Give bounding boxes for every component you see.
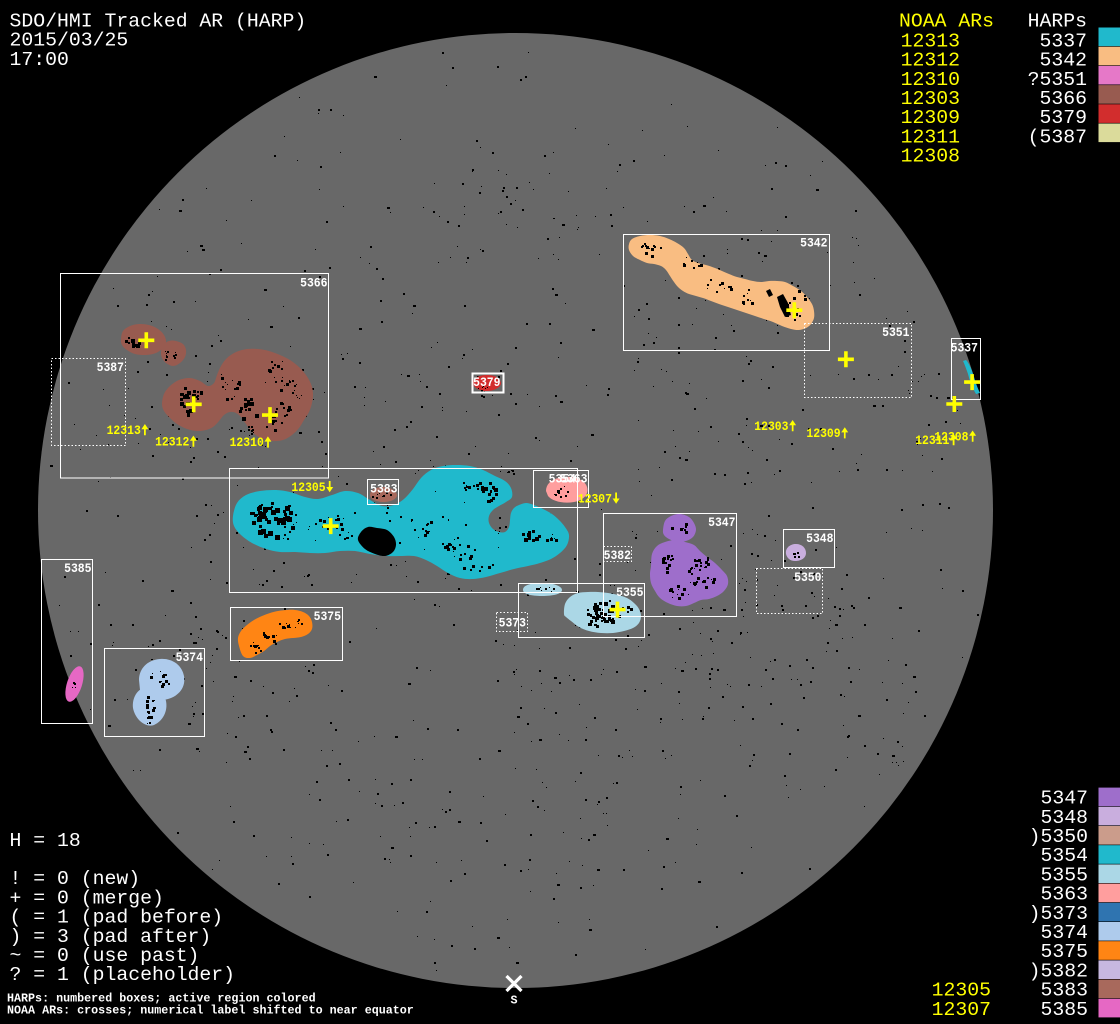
svg-text:5373: 5373 xyxy=(499,617,526,631)
svg-text:12310: 12310 xyxy=(230,436,264,450)
svg-text:5385: 5385 xyxy=(64,562,91,576)
svg-text:12307: 12307 xyxy=(578,492,612,506)
svg-text:12311: 12311 xyxy=(915,434,950,448)
svg-text:5347: 5347 xyxy=(708,516,735,530)
svg-text:12307: 12307 xyxy=(932,999,991,1021)
svg-text:5387: 5387 xyxy=(97,361,124,375)
svg-text:17:00: 17:00 xyxy=(10,49,69,71)
svg-text:HARPs: HARPs xyxy=(1028,11,1087,33)
svg-text:NOAA ARs: NOAA ARs xyxy=(899,11,994,33)
svg-text:12309: 12309 xyxy=(806,427,840,441)
svg-text:5375: 5375 xyxy=(314,610,341,624)
svg-text:5363: 5363 xyxy=(560,473,587,487)
svg-text:5351: 5351 xyxy=(882,326,910,340)
svg-text:NOAA ARs: crosses; numerical l: NOAA ARs: crosses; numerical label shift… xyxy=(7,1004,414,1018)
svg-text:5348: 5348 xyxy=(806,532,833,546)
svg-text:5337: 5337 xyxy=(951,342,978,356)
svg-text:S: S xyxy=(510,994,517,1008)
svg-text:5350: 5350 xyxy=(794,571,821,585)
svg-text:5385: 5385 xyxy=(1041,999,1088,1021)
svg-text:5379: 5379 xyxy=(473,376,500,390)
svg-text:? = 1 (placeholder): ? = 1 (placeholder) xyxy=(10,964,236,986)
svg-text:12303: 12303 xyxy=(754,420,788,434)
svg-text:12312: 12312 xyxy=(155,435,189,449)
svg-text:5382: 5382 xyxy=(604,549,631,563)
svg-text:5366: 5366 xyxy=(300,276,327,290)
svg-text:5374: 5374 xyxy=(176,651,204,665)
svg-text:H = 18: H = 18 xyxy=(10,830,81,852)
svg-text:5342: 5342 xyxy=(800,236,827,250)
svg-text:5383: 5383 xyxy=(370,483,397,497)
svg-text:12308: 12308 xyxy=(901,146,960,168)
svg-text:12305: 12305 xyxy=(291,481,325,495)
svg-text:(5387: (5387 xyxy=(1028,126,1087,148)
svg-text:5355: 5355 xyxy=(616,586,643,600)
svg-text:12313: 12313 xyxy=(107,424,141,438)
